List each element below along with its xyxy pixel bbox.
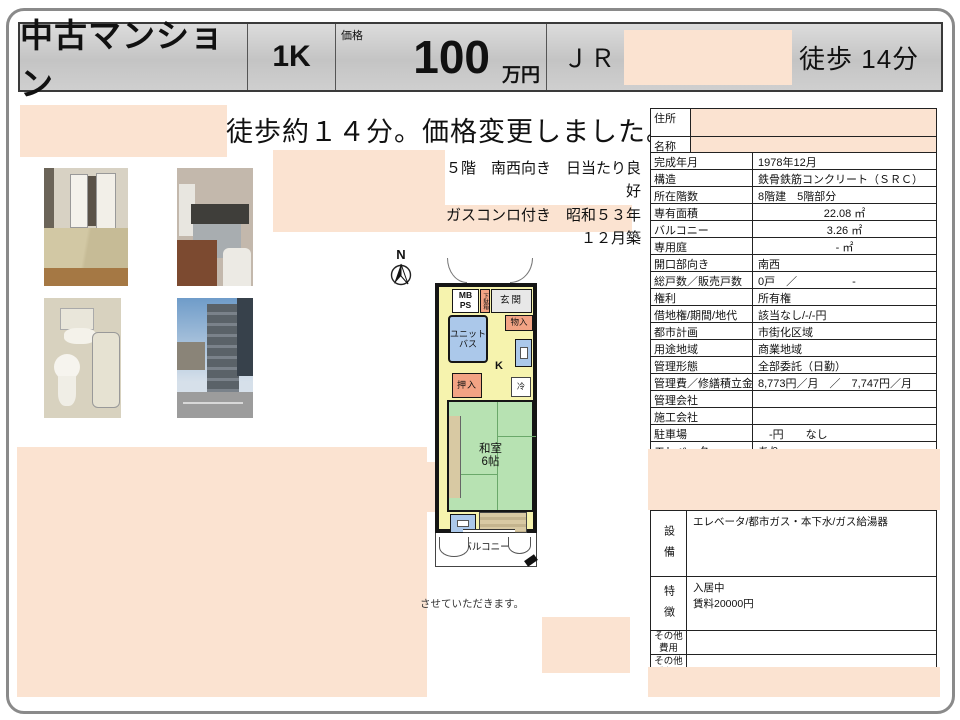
redacted-station-name bbox=[624, 30, 792, 85]
row-value: 所有権 bbox=[753, 289, 936, 305]
row-label: 都市計画 bbox=[651, 323, 753, 339]
photo-tatami-floor bbox=[44, 228, 128, 270]
table-row: 管理費／修繕積立金8,773円／月 ／ 7,747円／月 bbox=[651, 374, 936, 391]
door-arc-left bbox=[447, 258, 467, 283]
row-label: 専有面積 bbox=[651, 204, 753, 220]
table-row: バルコニー3.26 ㎡ bbox=[651, 221, 936, 238]
property-detail-table-bottom: 設備 エレベータ/都市ガス・本下水/ガス給湯器 特徴 入居中 賃料20000円 … bbox=[650, 510, 937, 680]
row-value: 南西 bbox=[753, 255, 936, 271]
photo-building-facade bbox=[207, 304, 239, 394]
table-row: 総戸数／販売戸数0戸 ／ - bbox=[651, 272, 936, 289]
header-bar: 中古マンション 1K 価格 100 万円 ＪＲ 徒歩 14分 bbox=[18, 22, 943, 92]
table-row: 特徴 入居中 賃料20000円 bbox=[651, 577, 936, 631]
redacted-block-table-mid bbox=[648, 449, 940, 510]
table-row: 専有面積22.08 ㎡ bbox=[651, 204, 936, 221]
headline: 徒歩約１４分。価格変更しました。 bbox=[226, 110, 646, 149]
table-row: 所在階数8階建 5階部分 bbox=[651, 187, 936, 204]
photo-building-road-line bbox=[183, 402, 243, 404]
price-value: 100 bbox=[413, 30, 490, 84]
tatami-wood-edge bbox=[449, 416, 461, 498]
features-label: 特徴 bbox=[651, 577, 687, 630]
room-kitchen-label: K bbox=[491, 359, 507, 373]
balcony-corner bbox=[524, 554, 538, 567]
table-row: 専用庭- ㎡ bbox=[651, 238, 936, 255]
balcony: バルコニー bbox=[435, 533, 537, 567]
row-value: 1978年12月 bbox=[753, 153, 936, 169]
redacted-block-top-left bbox=[20, 105, 227, 157]
row-label: 専用庭 bbox=[651, 238, 753, 254]
table-row: 権利所有権 bbox=[651, 289, 936, 306]
rail-line: ＪＲ bbox=[563, 39, 617, 75]
row-label: 完成年月 bbox=[651, 153, 753, 169]
row-value: 0戸 ／ - bbox=[753, 272, 936, 288]
row-value: 商業地域 bbox=[753, 340, 936, 356]
property-detail-table: 住所 名称 完成年月1978年12月 構造鉄骨鉄筋コンクリート（ＳＲＣ） 所在階… bbox=[650, 108, 937, 460]
room-closet: 押入 bbox=[452, 373, 482, 398]
table-row: 開口部向き南西 bbox=[651, 255, 936, 272]
row-label: 住所 bbox=[651, 109, 691, 136]
room-tatami: 和室 6帖 bbox=[447, 400, 534, 512]
photo-building-low bbox=[177, 342, 205, 370]
row-value: 全部委託（日勤） bbox=[753, 357, 936, 373]
balcony-pot-right bbox=[508, 537, 531, 554]
lead-subline-1: ５階 南西向き 日当たり良好 bbox=[445, 157, 641, 204]
room-entrance: 玄関 bbox=[491, 289, 532, 313]
row-value: 該当なし/-/-円 bbox=[753, 306, 936, 322]
compass-n-label: N bbox=[386, 248, 416, 261]
row-value: 市街化区域 bbox=[753, 323, 936, 339]
row-value: -円 なし bbox=[753, 425, 936, 441]
table-row: 管理会社 bbox=[651, 391, 936, 408]
photo-kitchen-floor bbox=[177, 240, 217, 286]
table-row: 設備 エレベータ/都市ガス・本下水/ガス給湯器 bbox=[651, 511, 936, 577]
room-mb-ps: MB PS bbox=[452, 289, 479, 313]
table-row: 借地権/期間/地代該当なし/-/-円 bbox=[651, 306, 936, 323]
row-label: 構造 bbox=[651, 170, 753, 186]
photo-bath-toilet-base bbox=[58, 376, 76, 406]
kitchen-sink bbox=[515, 339, 532, 367]
photo-unit-bath bbox=[44, 298, 121, 418]
redacted-block-table-bottom bbox=[648, 667, 940, 697]
floor-plan: MB PS 下駄箱 玄関 ユニット バス 物入 K 押入 冷 和室 6帖 bbox=[435, 250, 537, 570]
table-row: 管理形態全部委託（日勤） bbox=[651, 357, 936, 374]
table-row: 完成年月1978年12月 bbox=[651, 153, 936, 170]
washing-machine-panel bbox=[457, 520, 469, 527]
row-label: 開口部向き bbox=[651, 255, 753, 271]
price-section: 価格 100 万円 bbox=[335, 24, 546, 90]
tatami-line-h1 bbox=[497, 436, 536, 437]
table-row: 用途地域商業地域 bbox=[651, 340, 936, 357]
table-row: その他 費用 bbox=[651, 631, 936, 655]
row-value: 鉄骨鉄筋コンクリート（ＳＲＣ） bbox=[753, 170, 936, 186]
table-row: 都市計画市街化区域 bbox=[651, 323, 936, 340]
row-label: 管理会社 bbox=[651, 391, 753, 407]
balcony-pot-left bbox=[439, 537, 469, 557]
photo-bath-tub bbox=[92, 332, 120, 408]
room-shoe-box: 下駄箱 bbox=[480, 289, 490, 313]
row-label: 用途地域 bbox=[651, 340, 753, 356]
photo-tatami-door-right bbox=[96, 173, 116, 229]
compass-north-icon: N bbox=[386, 248, 416, 292]
table-row: 駐車場 -円 なし bbox=[651, 425, 936, 442]
row-value: 22.08 ㎡ bbox=[753, 204, 936, 220]
photo-tatami-door-left bbox=[70, 174, 88, 228]
lead-subline-2: ガスコンロ付き 昭和５３年１２月築 bbox=[445, 204, 641, 251]
photo-kitchen-counter bbox=[191, 204, 249, 224]
redacted-address bbox=[691, 109, 936, 136]
facilities-label: 設備 bbox=[651, 511, 687, 576]
photo-kitchen-washer bbox=[223, 248, 251, 286]
redacted-block-bottom-left bbox=[17, 447, 427, 697]
row-value: 3.26 ㎡ bbox=[753, 221, 936, 237]
row-value: - ㎡ bbox=[753, 238, 936, 254]
row-value bbox=[753, 391, 936, 407]
tatami-line-h2 bbox=[461, 474, 497, 475]
facilities-value: エレベータ/都市ガス・本下水/ガス給湯器 bbox=[687, 511, 936, 576]
floor-plan-unit: MB PS 下駄箱 玄関 ユニット バス 物入 K 押入 冷 和室 6帖 bbox=[435, 283, 537, 533]
row-label: 名称 bbox=[651, 137, 691, 152]
row-label: 借地権/期間/地代 bbox=[651, 306, 753, 322]
layout-type: 1K bbox=[247, 24, 335, 90]
photo-building-side bbox=[237, 298, 253, 376]
row-label: 管理費／修繕積立金 bbox=[651, 374, 753, 390]
door-arc-entrance bbox=[510, 258, 533, 283]
fine-print: させていただきます。 bbox=[420, 596, 524, 611]
price-unit: 万円 bbox=[502, 60, 540, 87]
table-row: 施工会社 bbox=[651, 408, 936, 425]
row-label: 総戸数／販売戸数 bbox=[651, 272, 753, 288]
photo-bath-mirror bbox=[60, 308, 94, 330]
other-costs-value bbox=[687, 631, 936, 654]
redacted-building-name bbox=[691, 137, 936, 152]
photo-tatami-room bbox=[44, 168, 128, 286]
price-label: 価格 bbox=[341, 27, 363, 43]
room-tatami-label: 和室 6帖 bbox=[479, 443, 502, 469]
table-row: 名称 bbox=[651, 137, 936, 153]
row-value: 8,773円／月 ／ 7,747円／月 bbox=[753, 374, 936, 390]
photo-building-road bbox=[177, 392, 253, 418]
photo-kitchen bbox=[177, 168, 253, 286]
row-label: 駐車場 bbox=[651, 425, 753, 441]
compass-needle-icon bbox=[388, 261, 414, 287]
photo-tatami-wood-floor bbox=[44, 268, 128, 286]
row-label: バルコニー bbox=[651, 221, 753, 237]
row-label: 管理形態 bbox=[651, 357, 753, 373]
access-section: ＪＲ 徒歩 14分 bbox=[546, 24, 941, 90]
kitchen-sink-basin bbox=[520, 347, 528, 359]
walk-time: 徒歩 14分 bbox=[799, 39, 919, 76]
row-label: 所在階数 bbox=[651, 187, 753, 203]
features-value: 入居中 賃料20000円 bbox=[687, 577, 936, 630]
photo-building-exterior bbox=[177, 298, 253, 418]
table-row: 構造鉄骨鉄筋コンクリート（ＳＲＣ） bbox=[651, 170, 936, 187]
room-storage: 物入 bbox=[505, 315, 533, 331]
room-fridge: 冷 bbox=[511, 377, 531, 397]
table-row: 住所 bbox=[651, 109, 936, 137]
row-value: 8階建 5階部分 bbox=[753, 187, 936, 203]
property-type: 中古マンション bbox=[20, 24, 247, 90]
lead-subtext: ５階 南西向き 日当たり良好 ガスコンロ付き 昭和５３年１２月築 bbox=[445, 149, 641, 205]
row-label: 施工会社 bbox=[651, 408, 753, 424]
row-label: 権利 bbox=[651, 289, 753, 305]
room-unit-bath: ユニット バス bbox=[448, 315, 488, 363]
other-costs-label: その他 費用 bbox=[651, 631, 687, 654]
row-value bbox=[753, 408, 936, 424]
redacted-block-bottom-middle bbox=[542, 617, 630, 673]
